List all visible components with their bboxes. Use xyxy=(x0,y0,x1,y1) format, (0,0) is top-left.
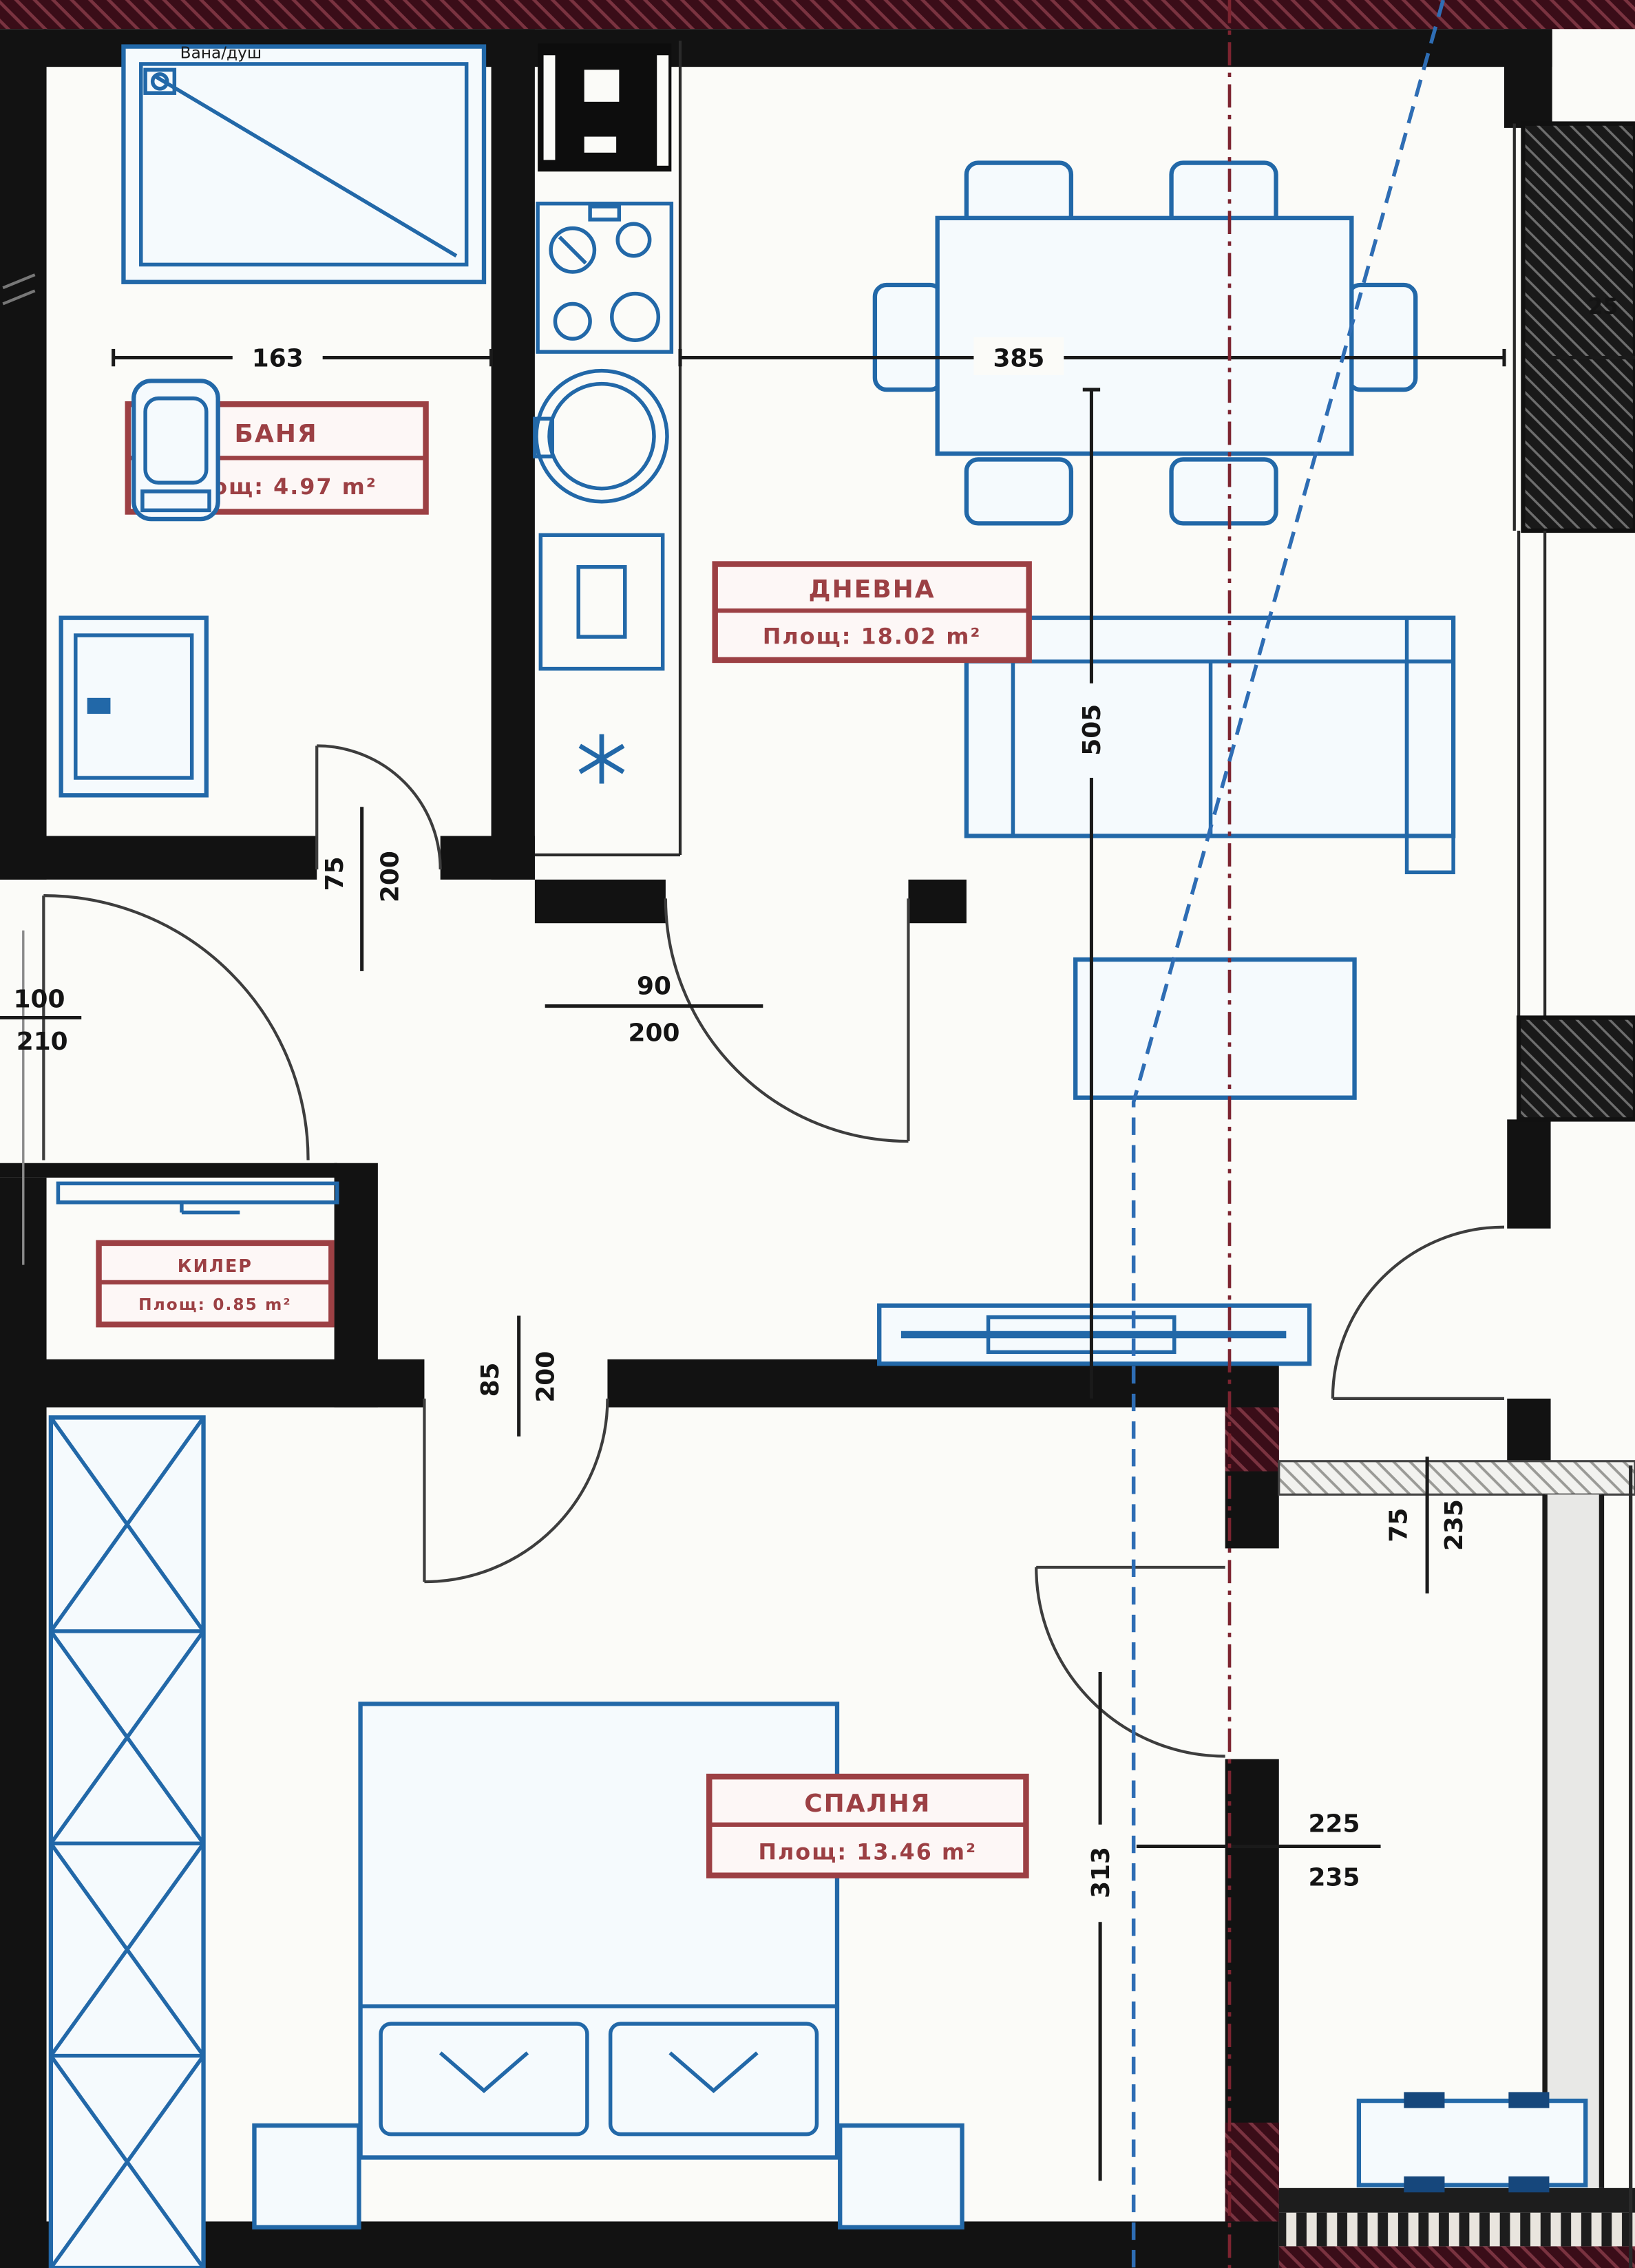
dim-text: 235 xyxy=(1440,1499,1468,1551)
floor-plan-drawing: Вана/душ xyxy=(0,0,1635,2268)
bathtub xyxy=(123,47,484,282)
balcony-top-band xyxy=(1279,1461,1635,1495)
fridge-snowflake-icon xyxy=(580,734,623,784)
shaft2-hatch xyxy=(1519,1018,1635,1120)
coffee-table xyxy=(1075,960,1354,1098)
room-label-living: ДНЕВНА Площ: 18.02 m² xyxy=(715,564,1029,660)
bathroom-sink xyxy=(61,618,207,796)
wc-toilet xyxy=(134,381,218,519)
dim-text: 210 xyxy=(17,1028,68,1056)
tv-stand xyxy=(879,1306,1309,1364)
living-door xyxy=(666,898,909,1141)
nightstand-right xyxy=(840,2126,962,2227)
dining-table-set xyxy=(875,163,1415,524)
room-area: Площ: 13.46 m² xyxy=(759,1840,978,1865)
room-area: Площ: 0.85 m² xyxy=(138,1295,292,1314)
bathtub-note: Вана/душ xyxy=(180,43,262,62)
dim-text: 200 xyxy=(629,1019,680,1047)
bottom-slab-hatch xyxy=(1279,2246,1635,2268)
entry-door xyxy=(43,895,308,1160)
kitchen-sink xyxy=(535,371,667,502)
dim-bath-door: 75 200 xyxy=(321,807,404,971)
nightstand-left xyxy=(254,2126,359,2227)
room-label-bedroom: СПАЛНЯ Площ: 13.46 m² xyxy=(709,1777,1026,1876)
dim-text: 75 xyxy=(321,856,349,891)
bed xyxy=(361,1704,837,2157)
dim-text: 385 xyxy=(993,344,1044,372)
dim-text: 163 xyxy=(252,344,304,372)
dim-text: 85 xyxy=(476,1362,505,1397)
room-name: БАНЯ xyxy=(235,420,318,448)
wardrobe xyxy=(51,1417,204,2268)
dim-living-door: 90 200 xyxy=(545,973,763,1048)
dim-text: 225 xyxy=(1309,1810,1360,1838)
floor-plan-page: Вана/душ xyxy=(0,0,1635,2268)
closet-shelf xyxy=(58,1183,337,1212)
dim-text: 100 xyxy=(14,986,65,1014)
dim-text: 235 xyxy=(1309,1863,1360,1891)
bedroom-balcony-door xyxy=(1036,1567,1225,1757)
living-furniture xyxy=(875,163,1453,1364)
dim-text: 200 xyxy=(376,851,404,902)
stove xyxy=(538,204,671,352)
balcony-bench xyxy=(1359,2092,1585,2192)
dim-bath-width: 163 xyxy=(114,337,492,375)
dim-text: 200 xyxy=(531,1351,560,1403)
dim-text: 25 xyxy=(1588,295,1618,319)
balcony-railing xyxy=(1545,1494,1601,2188)
room-name: СПАЛНЯ xyxy=(804,1790,931,1818)
dim-text: 90 xyxy=(637,973,671,1001)
dim-text: 313 xyxy=(1087,1847,1115,1898)
dim-text: 505 xyxy=(1078,704,1106,756)
bedroom-door xyxy=(424,1399,607,1582)
dim-bedroom-door: 85 200 xyxy=(476,1316,560,1437)
kitchen-fixtures xyxy=(535,41,680,855)
room-area: Площ: 18.02 m² xyxy=(763,625,982,650)
room-label-closet: КИЛЕР Площ: 0.85 m² xyxy=(99,1243,332,1324)
living-balcony-door xyxy=(1333,1227,1504,1399)
shaft-hatch xyxy=(1523,124,1635,531)
dim-bedroom-depth: 313 xyxy=(1087,1672,1115,2181)
dim-living-depth: 505 xyxy=(1078,390,1106,1399)
top-slab-hatch xyxy=(0,0,1635,29)
dim-text: 75 xyxy=(1385,1508,1413,1543)
oven-appliance xyxy=(540,535,662,668)
room-name: КИЛЕР xyxy=(178,1255,253,1276)
room-name: ДНЕВНА xyxy=(809,575,936,604)
